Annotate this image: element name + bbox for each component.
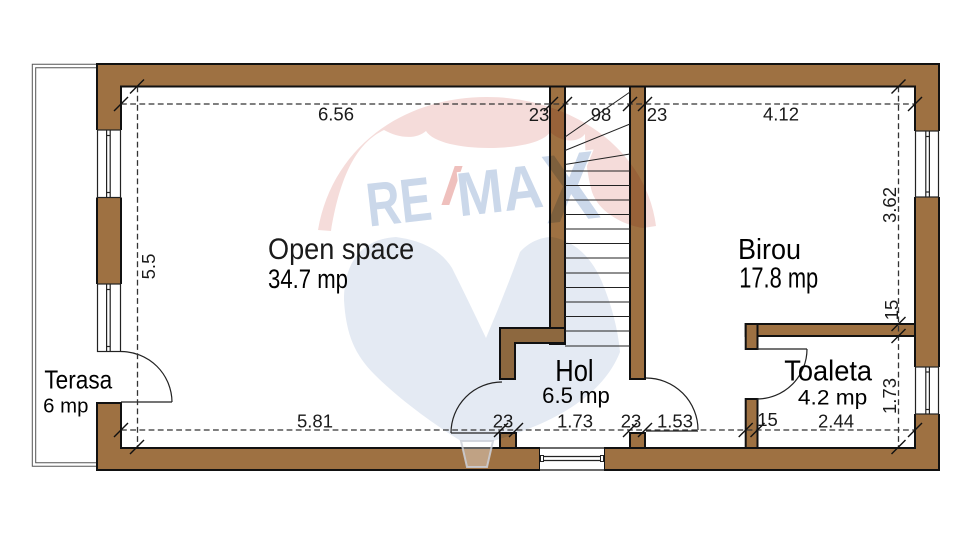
svg-text:Open space: Open space xyxy=(268,233,414,266)
svg-text:1.73: 1.73 xyxy=(879,378,900,414)
svg-text:4.2 mp: 4.2 mp xyxy=(798,387,867,410)
svg-text:23: 23 xyxy=(621,411,642,432)
svg-text:RE: RE xyxy=(363,165,435,241)
svg-text:98: 98 xyxy=(591,104,612,125)
svg-text:Toaleta: Toaleta xyxy=(784,355,873,387)
svg-text:Terasa: Terasa xyxy=(44,364,112,394)
svg-text:6.5 mp: 6.5 mp xyxy=(542,383,610,408)
svg-text:Birou: Birou xyxy=(738,234,801,266)
svg-text:MA: MA xyxy=(453,152,546,230)
svg-text:1.53: 1.53 xyxy=(657,411,693,432)
svg-text:23: 23 xyxy=(493,411,514,432)
svg-text:15: 15 xyxy=(757,409,778,430)
svg-text:5.81: 5.81 xyxy=(297,411,333,432)
svg-text:23: 23 xyxy=(647,104,668,125)
svg-text:2.44: 2.44 xyxy=(818,411,854,432)
svg-text:3.62: 3.62 xyxy=(879,187,900,223)
svg-text:17.8 mp: 17.8 mp xyxy=(739,263,818,295)
svg-text:6.56: 6.56 xyxy=(318,104,354,125)
svg-text:6 mp: 6 mp xyxy=(43,396,88,418)
svg-text:1.73: 1.73 xyxy=(557,411,593,432)
svg-text:15: 15 xyxy=(881,300,902,321)
svg-text:4.12: 4.12 xyxy=(763,104,799,125)
svg-text:34.7 mp: 34.7 mp xyxy=(268,264,348,294)
svg-text:5.5: 5.5 xyxy=(138,254,159,280)
svg-text:23: 23 xyxy=(529,104,550,125)
